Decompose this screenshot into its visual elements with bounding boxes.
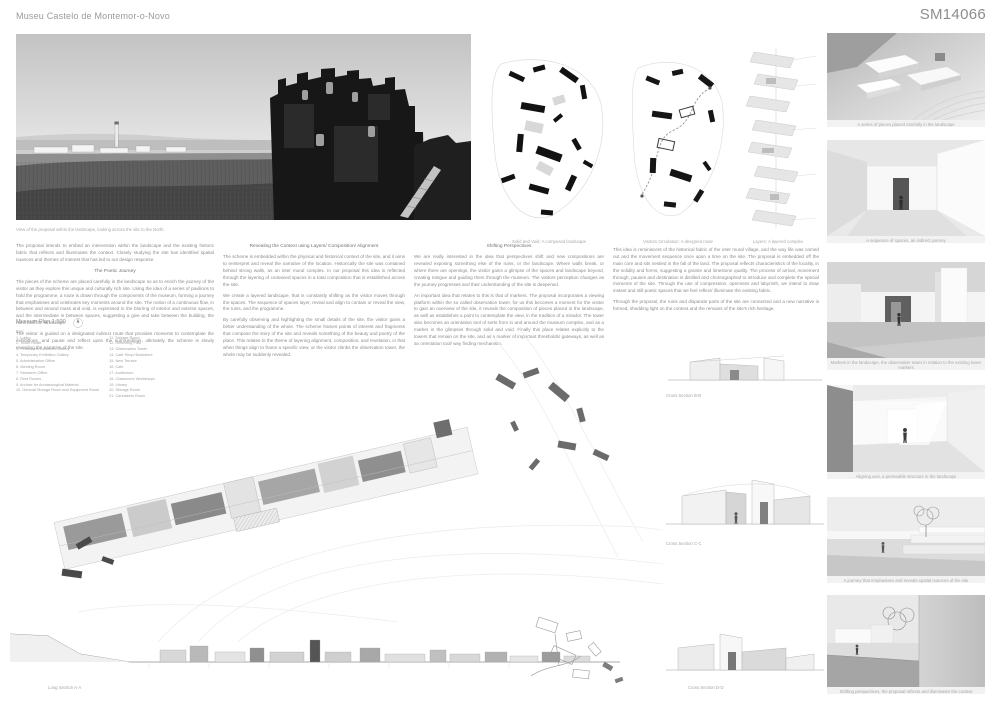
diagram-circulation: Visitors Circulation: A designed route	[622, 44, 734, 244]
cross-section-d-drawing	[662, 612, 828, 684]
diagram-layers: Layers: A layered complex	[736, 42, 820, 244]
plan-fragment-sketch	[515, 606, 645, 700]
plan-key-left: 1. Lobby 2. Ticket Room 3. Permanent Exh…	[16, 336, 99, 401]
render-caption: Aligning axis, a permeable structure in …	[827, 474, 985, 479]
render-markers-illustration	[827, 262, 985, 358]
diagram-solid-void-illustration	[481, 44, 617, 234]
essay-paragraph: The scheme is embedded within the physic…	[223, 254, 405, 288]
hero-photo: View of the proposal within the landscap…	[16, 34, 471, 220]
essay-column-heritage: This idea is reminiscent of the historic…	[613, 247, 819, 317]
render-caption: Markers in the landscape, the observatio…	[827, 360, 985, 370]
render-sequence: A sequence of spaces, an indirect journe…	[827, 140, 985, 243]
plan-key-right: 11. Storage Room 12. Reflecting Pool 13.…	[109, 336, 155, 401]
plan-title: Museum Plan 1:500	[16, 319, 66, 325]
entry-code: SM14066	[920, 6, 986, 23]
diagram-layers-illustration	[736, 42, 820, 234]
essay-paragraph: Through the proposal, the ruins and disp…	[613, 299, 819, 313]
essay-paragraph: We are really interested in the idea tha…	[414, 254, 604, 288]
render-caption: A series of pieces placed carefully in t…	[827, 122, 985, 127]
render-terraces: A journey that emphasises and reveals sp…	[827, 497, 985, 583]
render-markers: Markers in the landscape, the observatio…	[827, 262, 985, 370]
render-perspective: Shifting perspectives, the proposal refl…	[827, 595, 985, 694]
essay-paragraph: We create a layered landscape, that is c…	[223, 293, 405, 314]
plan-key-label: Key:	[16, 329, 166, 334]
render-axis: Aligning axis, a permeable structure in …	[827, 385, 985, 479]
cross-section-c-label: Cross Section C-C	[666, 541, 702, 546]
diagram-caption: Visitors Circulation: A designed route	[622, 239, 734, 244]
plan-key-item: 21. Caretakers Room	[109, 394, 155, 400]
render-caption: A sequence of spaces, an indirect journe…	[827, 238, 985, 243]
cross-section-b-drawing	[662, 338, 828, 390]
plan-legend: Museum Plan 1:500 Key: 1. Lobby 2. Ticke…	[16, 317, 166, 400]
plan-key-item: 18. Classroom/ Workshops	[109, 377, 155, 383]
cross-section-d-label: Cross Section D-D	[688, 685, 724, 690]
render-caption: Shifting perspectives, the proposal refl…	[827, 689, 985, 694]
render-caption: A journey that emphasises and reveals sp…	[827, 578, 985, 583]
render-perspective-illustration	[827, 595, 985, 687]
essay-heading-shifting-perspectives: Shifting Perspectives	[414, 243, 604, 250]
cross-section-b-label: Cross Section B-B	[666, 393, 701, 398]
cross-section-c-drawing	[662, 452, 828, 538]
diagram-solid-void: Solid and Void: A composed landscape	[481, 44, 617, 244]
long-section-label: Long Section A-A	[48, 685, 81, 690]
north-arrow-icon	[72, 317, 84, 329]
diagram-caption: Layers: A layered complex	[736, 239, 820, 244]
essay-heading-revealing-context: Revealing the Context using Layers/ Comp…	[223, 243, 405, 250]
diagram-circulation-illustration	[622, 44, 734, 234]
essay-intro: The proposal intends to embed an interve…	[16, 243, 214, 264]
plan-key-item: 10. General Storage Room and Equipment R…	[16, 388, 99, 394]
render-aerial: A series of pieces placed carefully in t…	[827, 33, 985, 127]
page-title: Museu Castelo de Montemor-o-Novo	[16, 11, 170, 21]
hero-photo-caption: View of the proposal within the landscap…	[16, 227, 471, 232]
render-axis-illustration	[827, 385, 985, 472]
render-terraces-illustration	[827, 497, 985, 576]
render-aerial-illustration	[827, 33, 985, 120]
essay-heading-poetic-journey: The Poetic Journey	[16, 268, 214, 275]
competition-board: Museu Castelo de Montemor-o-Novo SM14066	[0, 0, 1000, 706]
essay-paragraph: This idea is reminiscent of the historic…	[613, 247, 819, 295]
hero-photo-illustration	[16, 34, 471, 220]
render-sequence-illustration	[827, 140, 985, 236]
